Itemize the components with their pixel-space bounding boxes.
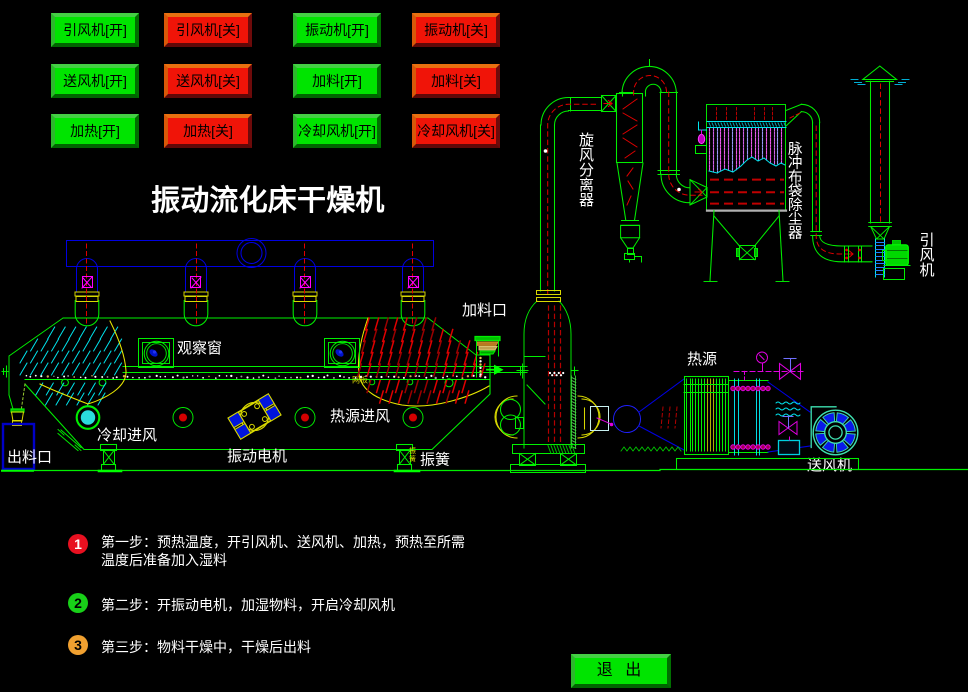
svg-text:观察窗: 观察窗 [177,339,222,357]
svg-text:送风机: 送风机 [807,457,852,474]
svg-text:振动电机: 振动电机 [227,448,287,465]
svg-text:振: 振 [409,446,416,455]
svg-text:热源: 热源 [687,351,717,368]
svg-text:加料口: 加料口 [462,302,507,319]
svg-text:出料口: 出料口 [7,449,52,466]
svg-text:簧: 簧 [409,454,416,463]
svg-text:振簧: 振簧 [420,452,450,469]
svg-text:冷却进风: 冷却进风 [97,427,157,444]
svg-text:机: 机 [920,262,935,279]
svg-text:器: 器 [788,226,803,242]
svg-text:器: 器 [579,192,594,209]
svg-text:热源进风: 热源进风 [330,408,390,425]
